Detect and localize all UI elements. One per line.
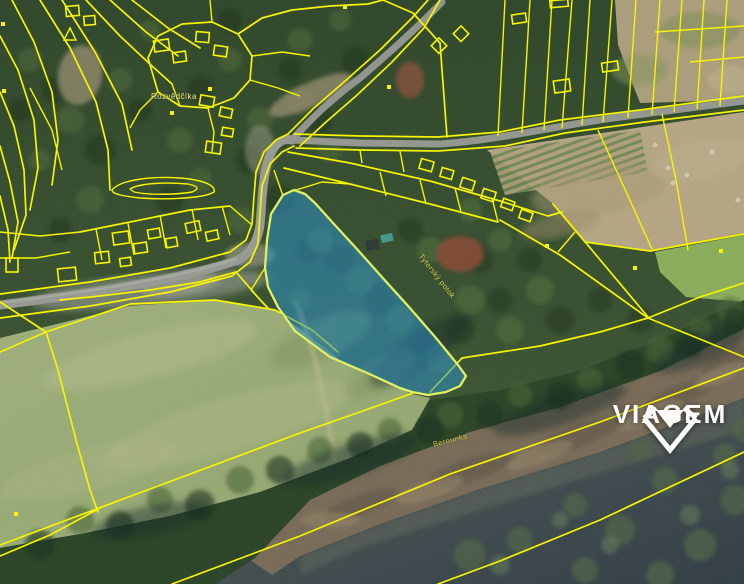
aerial-basemap [0,0,744,584]
aerial-map-image[interactable]: Rozvědčíka Tyterský potok Berounka VIAGE… [0,0,744,584]
